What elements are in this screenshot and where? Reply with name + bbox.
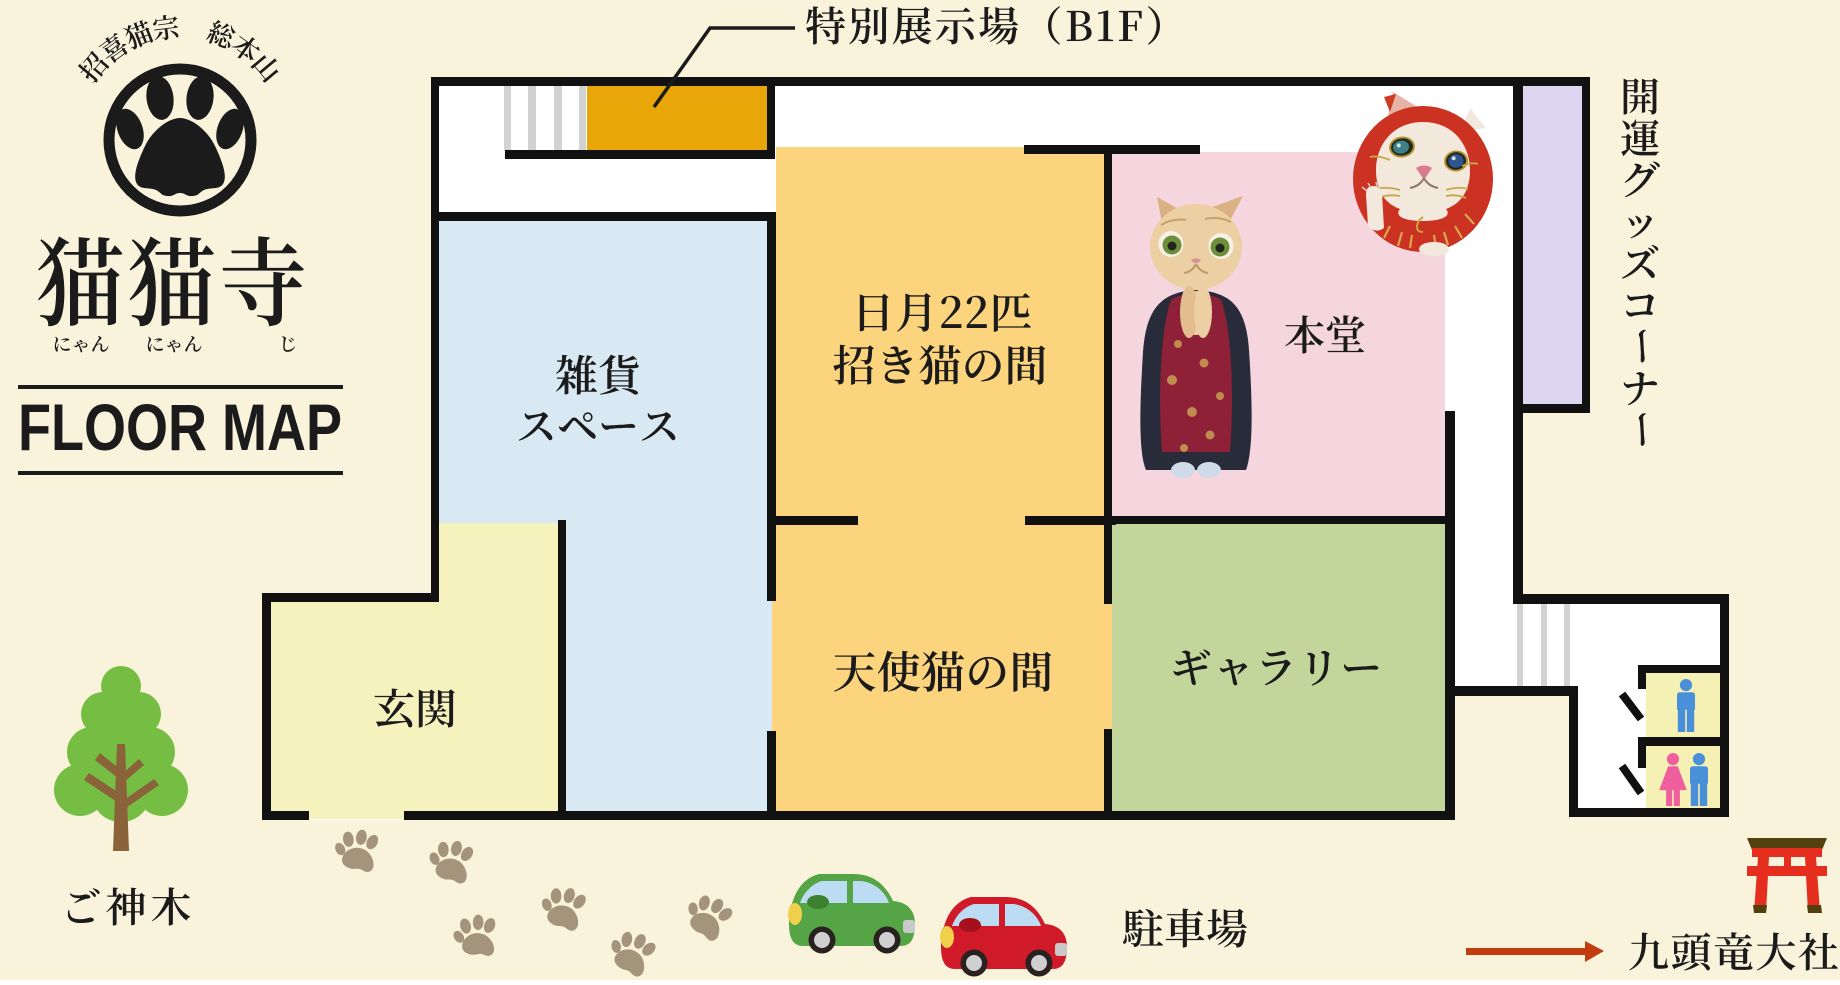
svg-text:FLOOR MAP: FLOOR MAP bbox=[18, 390, 342, 464]
